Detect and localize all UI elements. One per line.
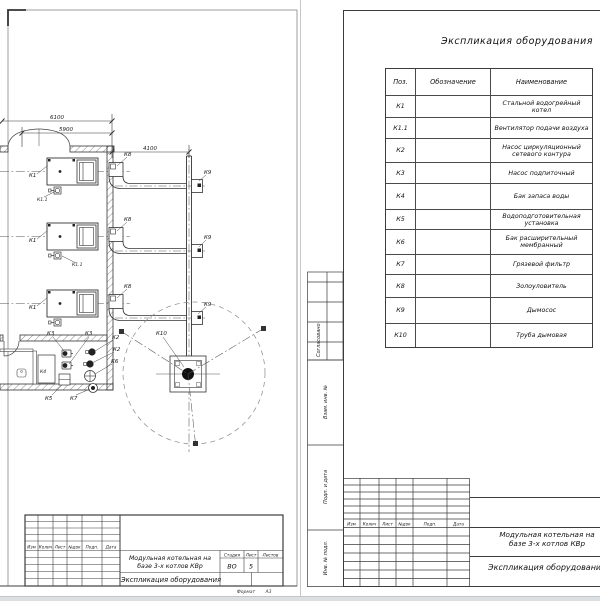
spec-row-k1: К1 Стальной водогрейный котел [386, 96, 592, 118]
doc-title-left: Экспликация оборудования [120, 576, 221, 584]
spec-row-k5: К5 Водоподготовительная установка [386, 210, 592, 230]
rev-col-ndok: №док [397, 522, 411, 527]
format-value: А3 [265, 589, 272, 595]
pos-cell: К4 [386, 184, 416, 209]
label-k9-2: К9 [204, 235, 212, 241]
pos-cell: К10 [386, 324, 416, 347]
name-cell: Насос циркуляционный сетевого контура [491, 139, 592, 162]
spec-table: Поз. Обозначение Наименование К1 Стально… [385, 68, 593, 348]
pos-cell: К9 [386, 298, 416, 323]
label-k7: К7 [70, 396, 78, 402]
rev-col-kolich: Колич [363, 522, 377, 527]
spec-row-k3: К3 Насос подпиточный [386, 163, 592, 184]
label-k1-3: К1 [29, 305, 36, 311]
designation-cell [416, 324, 491, 347]
boiler-3 [47, 290, 98, 317]
pos-cell: К1 [386, 96, 416, 117]
designation-cell [416, 210, 491, 229]
label-k5: К5 [45, 396, 53, 402]
plan-drawing: 6100 5900 4100 [0, 0, 301, 600]
pos-cell: К3 [386, 163, 416, 183]
designation-cell [416, 96, 491, 117]
label-k4: К4 [40, 369, 46, 375]
sheets-label: Листов [262, 553, 279, 558]
spec-row-k4: К4 Бак запаса воды [386, 184, 592, 210]
rev-col-data: Дата [105, 545, 117, 550]
page-edge-divider [300, 0, 301, 597]
name-cell: Труба дымовая [491, 324, 592, 347]
stage-value: ВО [227, 563, 236, 571]
pos-cell: К1.1 [386, 118, 416, 138]
name-cell: Дымосос [491, 298, 592, 323]
designation-cell [416, 184, 491, 209]
label-k8-3: К8 [124, 284, 132, 290]
name-cell: Бак запаса воды [491, 184, 592, 209]
sheet-number: 5 [249, 563, 253, 571]
project-name: Модульная котельная на базе 3-х котлов К… [470, 530, 600, 548]
stage-label: Стадия [224, 553, 241, 558]
sheet-label: Лист [245, 553, 257, 558]
divider-line [470, 556, 600, 557]
designation-cell [416, 163, 491, 183]
project-name-line1: Модульная котельная на [499, 530, 594, 539]
label-k1-1: К1 [29, 173, 36, 179]
name-cell: Бак расширительный мембранный [491, 230, 592, 254]
rev-col-izm: Изм [27, 545, 36, 550]
inv-podl-label: Инв. № подл. [323, 541, 329, 576]
left-drawing-sheet: 6100 5900 4100 [0, 0, 301, 600]
designation-cell [416, 275, 491, 297]
project-name-line2: базе 3-х котлов КВр [137, 562, 203, 570]
label-k1_1-b: К1.1 [72, 262, 83, 268]
room-door [4, 341, 19, 356]
spec-row-k9: К9 Дымосос [386, 298, 592, 324]
spec-row-k10: К10 Труба дымовая [386, 324, 592, 347]
dim-inner-width: 5900 [59, 127, 73, 133]
pos-cell: К6 [386, 230, 416, 254]
label-k9-3: К9 [204, 302, 212, 308]
designation-cell [416, 298, 491, 323]
spec-header-row: Поз. Обозначение Наименование [386, 69, 592, 96]
fan-1 [49, 187, 62, 194]
rev-col-kolich: Колич [39, 545, 53, 550]
boiler-2 [47, 223, 98, 250]
spec-row-k1-1: К1.1 Вентилятор подачи воздуха [386, 118, 592, 139]
label-k8-2: К8 [124, 217, 132, 223]
name-cell: Стальной водогрейный котел [491, 96, 592, 117]
rev-col-podp: Подп. [86, 545, 99, 550]
label-k1_1-a: К1.1 [37, 197, 48, 203]
right-spec-sheet: Экспликация оборудования Поз. Обозначени… [301, 0, 600, 600]
name-cell: Вентилятор подачи воздуха [491, 118, 592, 138]
pos-cell: К7 [386, 255, 416, 274]
label-k10: К10 [156, 331, 167, 337]
label-k3-b: К3 [85, 331, 93, 337]
spec-title: Экспликация оборудования [409, 36, 600, 47]
pos-cell: К8 [386, 275, 416, 297]
rev-col-izm: Изм [347, 522, 356, 527]
rev-col-list: Лист [54, 545, 66, 550]
name-cell: Золоуловитель [491, 275, 592, 297]
project-name-line2: базе 3-х котлов КВр [509, 539, 585, 548]
rev-col-list: Лист [381, 522, 393, 527]
spec-row-k8: К8 Золоуловитель [386, 275, 592, 298]
spec-row-k7: К7 Грязевой фильтр [386, 255, 592, 275]
label-k9-1: К9 [204, 170, 212, 176]
fan-2 [49, 252, 62, 259]
dim-outer-width: 6100 [50, 115, 64, 121]
approved-label: Согласовано [316, 323, 322, 357]
rev-col-ndok: №док [67, 545, 81, 550]
header-pos: Поз. [386, 69, 416, 95]
fan-3 [49, 319, 62, 326]
title-block-left-text: Изм Колич Лист №док Подп. Дата Стадия Ли… [27, 545, 279, 596]
label-k2-a: К2 [112, 335, 120, 341]
spec-row-k2: К2 Насос циркуляционный сетевого контура [386, 139, 592, 163]
format-label: Формат [237, 589, 256, 595]
designation-cell [416, 255, 491, 274]
label-k1-2: К1 [29, 238, 36, 244]
label-k3-a: К3 [47, 331, 55, 337]
rev-col-data: Дата [452, 522, 464, 527]
name-cell: Насос подпиточный [491, 163, 592, 183]
project-name-line1: Модульная котельная на [129, 555, 211, 562]
designation-cell [416, 230, 491, 254]
header-name: Наименование [491, 69, 592, 95]
divider-line [470, 497, 600, 498]
pos-cell: К2 [386, 139, 416, 162]
header-designation: Обозначение [416, 69, 491, 95]
podp-data-label: Подп. и дата [323, 470, 329, 504]
designation-cell [416, 139, 491, 162]
label-k8-1: К8 [124, 152, 132, 158]
spec-row-k6: К6 Бак расширительный мембранный [386, 230, 592, 255]
name-cell: Грязевой фильтр [491, 255, 592, 274]
name-cell: Водоподготовительная установка [491, 210, 592, 229]
pos-cell: К5 [386, 210, 416, 229]
vzam-inv-label: Взам. инв. № [323, 385, 329, 419]
rev-col-podp: Подп. [424, 522, 437, 527]
doc-title-right: Экспликация оборудования [470, 563, 600, 572]
label-k2-b: К2 [113, 347, 121, 353]
desk-background [0, 596, 600, 601]
label-k6: К6 [111, 359, 119, 365]
revision-grid: Изм Колич Лист №док Подп. Дата [343, 478, 470, 587]
dim-duct-span: 4100 [143, 146, 157, 152]
margin-stamps: Согласовано Взам. инв. № Подп. и дата Ин… [307, 270, 343, 587]
designation-cell [416, 118, 491, 138]
divider-line [470, 527, 600, 528]
boiler-1 [47, 158, 98, 185]
